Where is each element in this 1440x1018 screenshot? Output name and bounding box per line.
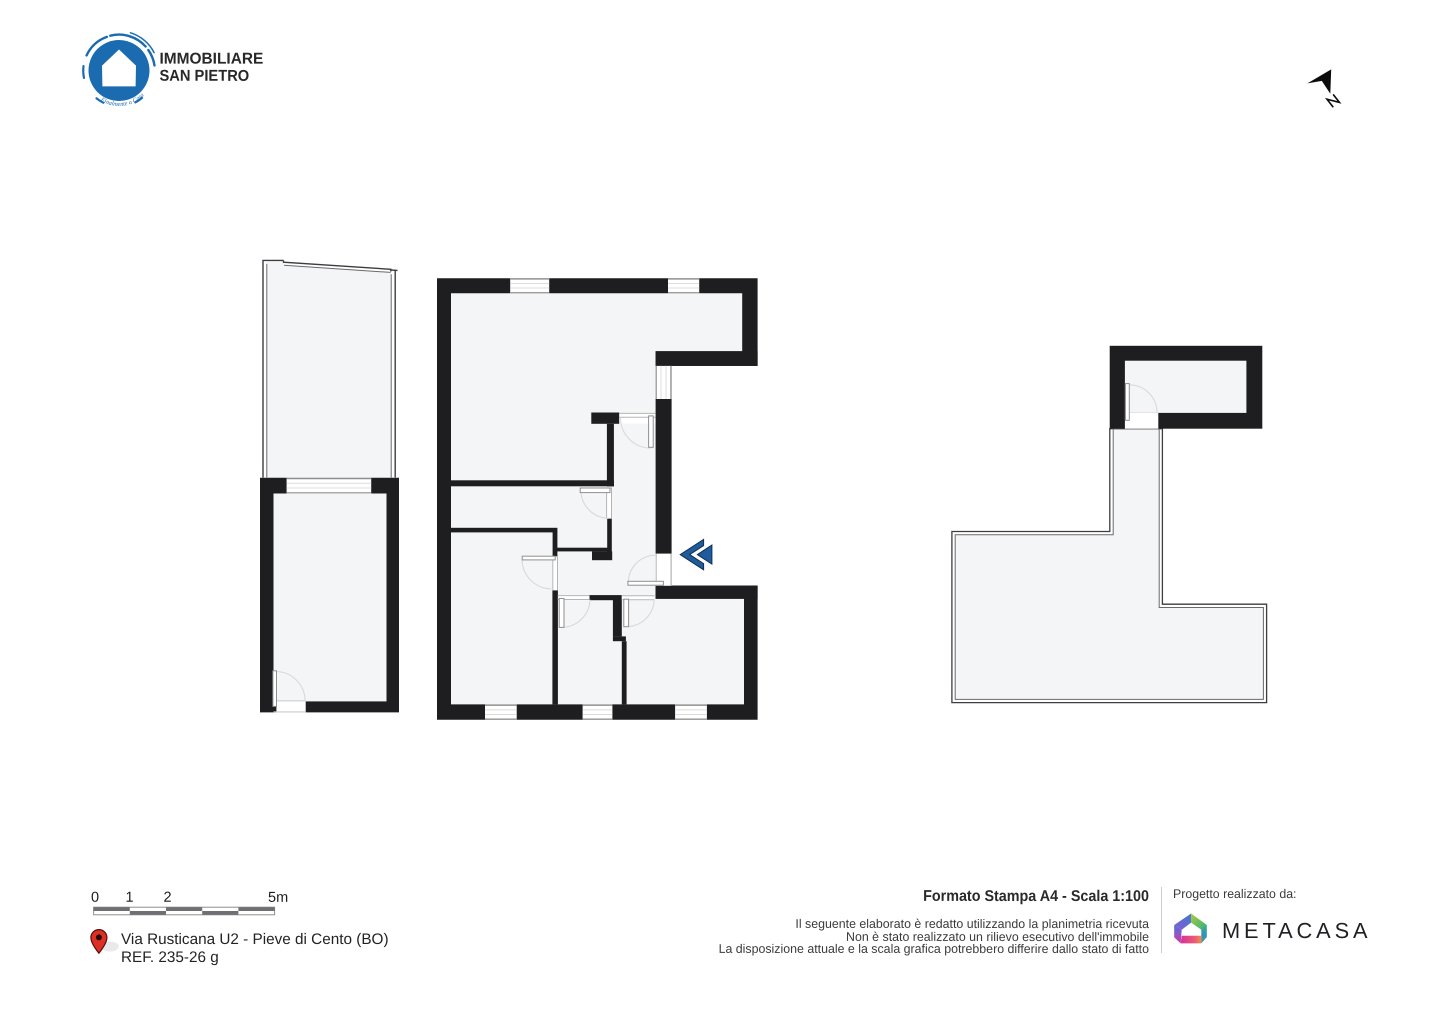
svg-text:2: 2 [163, 890, 171, 906]
svg-text:5m: 5m [268, 890, 288, 906]
svg-text:IMMOBILIARE: IMMOBILIARE [159, 51, 263, 68]
svg-text:SAN PIETRO: SAN PIETRO [159, 68, 249, 85]
svg-text:0: 0 [91, 890, 99, 906]
svg-text:1: 1 [125, 890, 133, 906]
